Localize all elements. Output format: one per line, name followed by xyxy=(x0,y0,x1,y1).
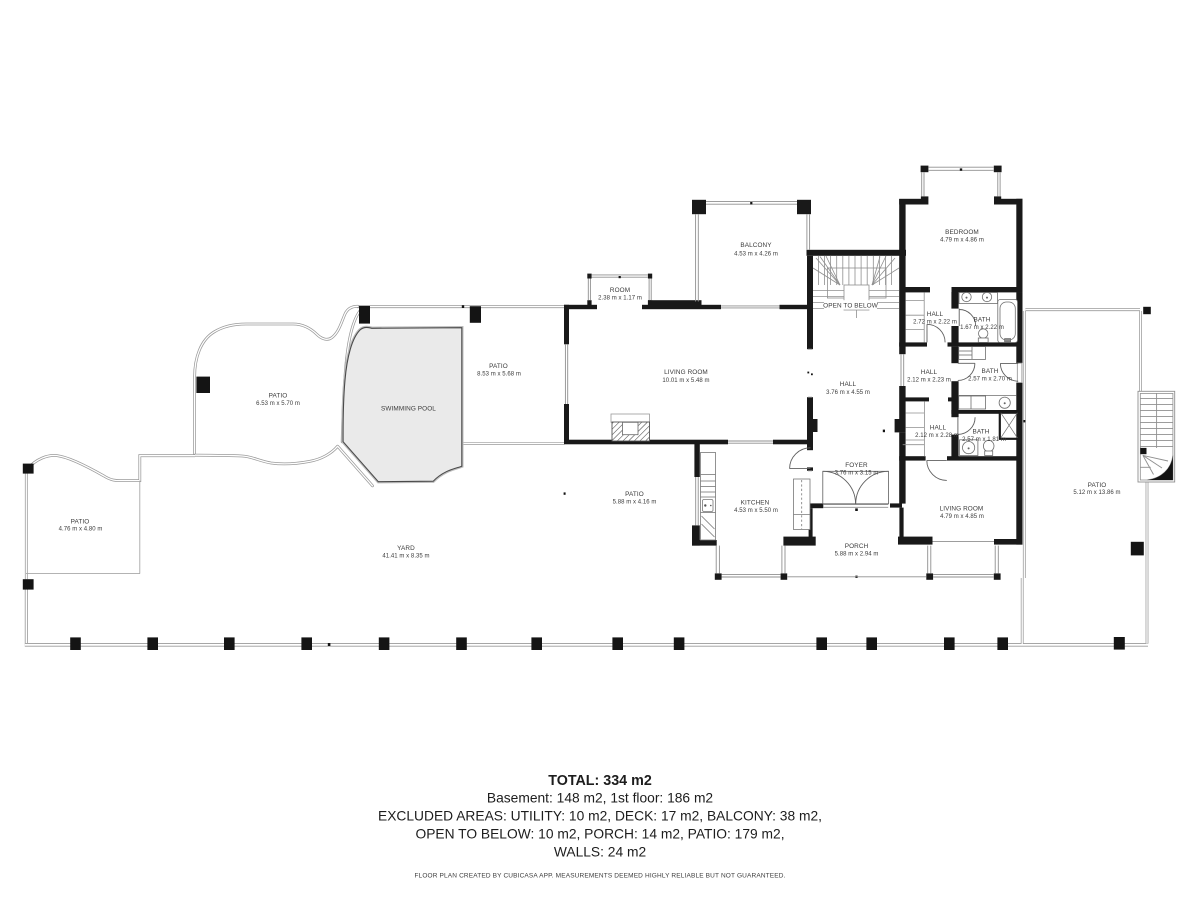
svg-text:ROOM: ROOM xyxy=(610,287,630,294)
svg-text:6.53 m x 5.70 m: 6.53 m x 5.70 m xyxy=(256,401,300,407)
svg-text:HALL: HALL xyxy=(840,381,857,388)
svg-text:5.12 m x 13.86 m: 5.12 m x 13.86 m xyxy=(1073,490,1120,496)
svg-text:BATH: BATH xyxy=(982,368,999,375)
svg-text:5.88 m x 2.94 m: 5.88 m x 2.94 m xyxy=(835,552,879,558)
svg-text:BATH: BATH xyxy=(973,429,990,436)
svg-text:LIVING ROOM: LIVING ROOM xyxy=(940,506,984,513)
svg-text:KITCHEN: KITCHEN xyxy=(741,500,770,507)
svg-text:OPEN TO BELOW: 10 m2, PORCH: 1: OPEN TO BELOW: 10 m2, PORCH: 14 m2, PATI… xyxy=(415,827,784,842)
svg-text:BATH: BATH xyxy=(974,317,991,324)
svg-text:BEDROOM: BEDROOM xyxy=(945,229,979,236)
svg-text:1.67 m x 2.22 m: 1.67 m x 2.22 m xyxy=(960,325,1004,331)
svg-text:2.12 m x 2.23 m: 2.12 m x 2.23 m xyxy=(907,378,951,384)
svg-text:BALCONY: BALCONY xyxy=(740,242,772,249)
svg-text:EXCLUDED AREAS: UTILITY: 10 m2: EXCLUDED AREAS: UTILITY: 10 m2, DECK: 17… xyxy=(378,809,822,824)
svg-text:OPEN TO BELOW: OPEN TO BELOW xyxy=(823,303,879,310)
svg-text:2.38 m x 1.17 m: 2.38 m x 1.17 m xyxy=(598,296,642,302)
svg-text:4.76 m x 4.80 m: 4.76 m x 4.80 m xyxy=(59,527,103,533)
svg-text:10.01 m x 5.48 m: 10.01 m x 5.48 m xyxy=(662,378,709,384)
svg-text:FOYER: FOYER xyxy=(845,462,868,469)
svg-text:Basement: 148 m2, 1st floor: 1: Basement: 148 m2, 1st floor: 186 m2 xyxy=(487,791,713,806)
svg-text:2.57 m x 2.70 m: 2.57 m x 2.70 m xyxy=(968,377,1012,383)
svg-text:LIVING ROOM: LIVING ROOM xyxy=(664,369,708,376)
svg-text:2.57 m x 1.81 m: 2.57 m x 1.81 m xyxy=(962,437,1006,443)
svg-text:HALL: HALL xyxy=(927,311,944,318)
svg-text:8.53 m x 5.68 m: 8.53 m x 5.68 m xyxy=(477,372,521,378)
svg-text:PATIO: PATIO xyxy=(489,363,508,370)
svg-text:4.79 m x 4.86 m: 4.79 m x 4.86 m xyxy=(940,237,984,243)
svg-text:5.88 m x 4.16 m: 5.88 m x 4.16 m xyxy=(613,500,657,506)
svg-text:HALL: HALL xyxy=(930,425,947,432)
svg-text:PATIO: PATIO xyxy=(625,491,644,498)
svg-text:SWIMMING POOL: SWIMMING POOL xyxy=(381,406,436,413)
svg-text:PATIO: PATIO xyxy=(71,519,90,526)
svg-text:2.72 m x 2.22 m: 2.72 m x 2.22 m xyxy=(913,320,957,326)
svg-text:WALLS: 24 m2: WALLS: 24 m2 xyxy=(554,845,646,860)
svg-text:4.53 m x 4.26 m: 4.53 m x 4.26 m xyxy=(734,251,778,257)
svg-text:PATIO: PATIO xyxy=(269,393,288,400)
svg-text:3.76 m x 4.55 m: 3.76 m x 4.55 m xyxy=(826,390,870,396)
svg-text:4.53 m x 5.50 m: 4.53 m x 5.50 m xyxy=(734,508,778,514)
svg-text:41.41 m x 8.35 m: 41.41 m x 8.35 m xyxy=(382,554,429,560)
svg-text:2.12 m x 2.28 m: 2.12 m x 2.28 m xyxy=(915,433,959,439)
svg-text:HALL: HALL xyxy=(921,369,938,376)
svg-text:TOTAL: 334 m2: TOTAL: 334 m2 xyxy=(548,773,652,789)
svg-text:PORCH: PORCH xyxy=(845,543,869,550)
svg-text:YARD: YARD xyxy=(397,545,415,552)
svg-text:3.76 m x 3.15 m: 3.76 m x 3.15 m xyxy=(835,471,879,477)
svg-text:FLOOR PLAN CREATED BY CUBICASA: FLOOR PLAN CREATED BY CUBICASA APP. MEAS… xyxy=(414,873,785,880)
svg-text:PATIO: PATIO xyxy=(1088,482,1107,489)
svg-text:4.79 m x 4.85 m: 4.79 m x 4.85 m xyxy=(940,514,984,520)
